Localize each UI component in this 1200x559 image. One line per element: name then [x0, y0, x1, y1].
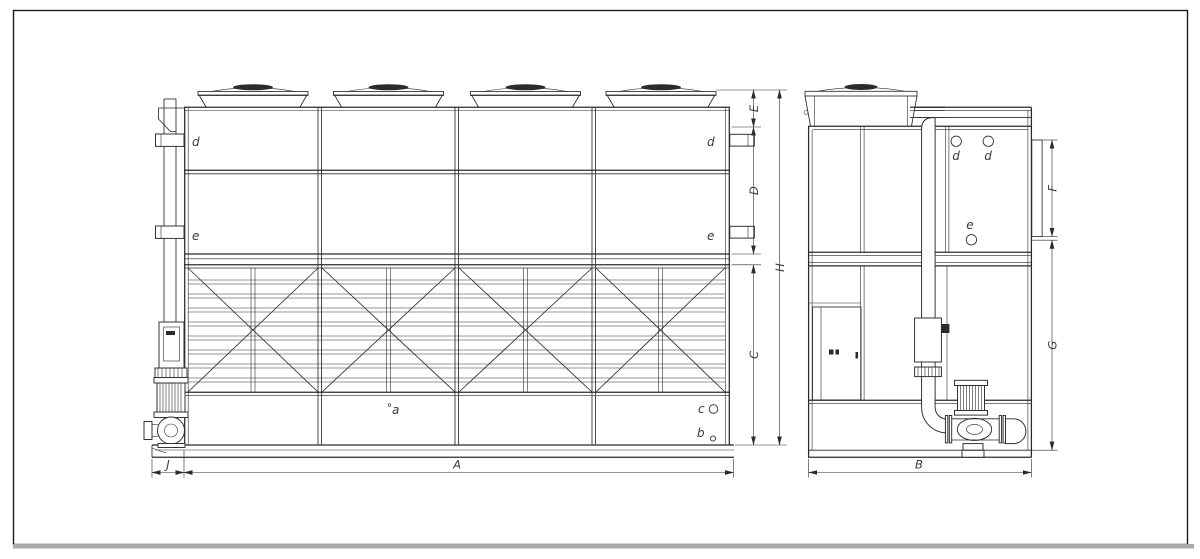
- front-view: d e d e a c b E D C H: [144, 84, 787, 477]
- page-border: [14, 11, 1188, 545]
- fan-cowl-side: [804, 84, 917, 126]
- label-d-rear: d: [984, 149, 992, 163]
- fan-cowl-icon: [198, 84, 308, 107]
- fan-cowl-icon: [606, 84, 716, 107]
- cross-bracing: [188, 268, 725, 392]
- fan-cowls: [198, 84, 716, 107]
- label-d-right: d: [707, 135, 715, 149]
- dim-label-D: D: [747, 186, 761, 195]
- louver-slats: [188, 280, 725, 382]
- casing-horizontals: [152, 107, 734, 457]
- cooling-tower-drawing: d e d e a c b E D C H: [0, 0, 1200, 559]
- label-c: c: [698, 402, 705, 416]
- riser-pipe-left: [156, 99, 185, 322]
- dim-label-G: G: [1046, 341, 1060, 350]
- label-e-right: e: [707, 229, 714, 243]
- nozzle-e-left: [156, 226, 185, 238]
- drain-c-circle: [709, 405, 718, 414]
- label-e-left: e: [192, 229, 199, 243]
- pump-front: [144, 322, 188, 448]
- dim-label-H: H: [773, 263, 787, 272]
- label-d-front: d: [952, 149, 960, 163]
- valve-actuator: [941, 324, 949, 333]
- pump-side: [945, 380, 1026, 457]
- door-nameplate: [829, 350, 834, 355]
- nozzle-d-right: [730, 134, 755, 146]
- pipe-union: [915, 367, 942, 377]
- casing-mullions: [185, 107, 730, 445]
- connection-d-circle: [951, 136, 961, 146]
- pump-volute: [957, 418, 991, 440]
- dim-label-C: C: [747, 351, 761, 359]
- dim-label-A: A: [452, 458, 461, 472]
- point-a-marker: [388, 404, 391, 407]
- pump-discharge-cap: [1006, 419, 1026, 444]
- fan-cowl-icon: [334, 84, 444, 107]
- nozzle-d-left: [156, 134, 185, 146]
- pump-motor: [958, 386, 985, 411]
- nozzle-e-right: [730, 226, 755, 238]
- pump-volute: [158, 417, 185, 444]
- drain-b-circle: [710, 436, 715, 441]
- pump-suction-flange: [144, 422, 152, 440]
- drawing-sheet: d e d e a c b E D C H: [0, 0, 1200, 559]
- side-view: d d e F G B: [804, 84, 1060, 478]
- connection-e-circle: [966, 235, 976, 245]
- dim-label-B: B: [915, 458, 923, 472]
- connection-d-circle: [983, 136, 993, 146]
- pump-outlet-stub: [962, 450, 984, 457]
- dim-label-E: E: [747, 104, 761, 112]
- side-connection-plate: [1032, 140, 1042, 237]
- fan-cowl-icon: [471, 84, 581, 107]
- label-d-left: d: [192, 135, 200, 149]
- bolt-icon: [804, 111, 808, 115]
- access-door: [813, 307, 862, 400]
- pipe-valve: [915, 318, 950, 377]
- label-e-side: e: [966, 218, 973, 232]
- label-a: a: [392, 403, 399, 417]
- dim-label-J: J: [164, 458, 170, 472]
- footer-bar: [13, 544, 1194, 549]
- riser-pipe-side: [922, 118, 947, 433]
- dim-label-F: F: [1046, 185, 1060, 192]
- pipe-bracket: [159, 108, 185, 132]
- label-b: b: [697, 426, 705, 440]
- door-handle: [856, 352, 859, 359]
